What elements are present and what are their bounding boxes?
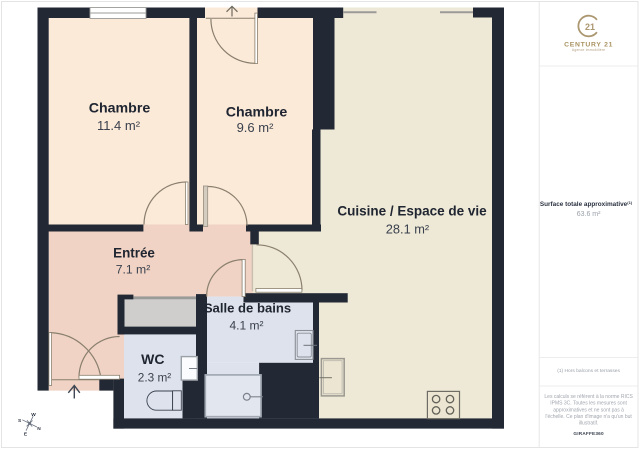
svg-text:approximatives et ne sont pas: approximatives et ne sont pas à [553, 407, 624, 413]
svg-text:63.6 m²: 63.6 m² [577, 211, 601, 218]
svg-text:Entrée: Entrée [113, 246, 155, 261]
svg-text:(1) Hors balcons et terrasses: (1) Hors balcons et terrasses [557, 368, 620, 374]
svg-text:Chambre: Chambre [226, 105, 288, 121]
svg-text:9.6 m²: 9.6 m² [237, 120, 275, 135]
svg-text:Chambre: Chambre [89, 101, 151, 117]
svg-text:7.1 m²: 7.1 m² [116, 263, 151, 277]
svg-text:l'échelle. Ce plan d'image n'a: l'échelle. Ce plan d'image n'a qu'un but [545, 414, 632, 420]
svg-text:21: 21 [585, 22, 595, 32]
svg-text:Salle de bains: Salle de bains [204, 301, 291, 316]
svg-text:28.1 m²: 28.1 m² [386, 222, 430, 237]
svg-text:N: N [37, 426, 41, 432]
svg-text:Les calculs se réfèrent à la n: Les calculs se réfèrent à la norme RICS [544, 394, 633, 400]
svg-text:W: W [31, 412, 36, 418]
svg-text:Cuisine / Espace de vie: Cuisine / Espace de vie [337, 204, 487, 219]
svg-text:Surface totale approximative(1: Surface totale approximative(1) [540, 200, 633, 208]
svg-text:2.3 m²: 2.3 m² [138, 371, 172, 385]
svg-text:11.4 m²: 11.4 m² [97, 118, 141, 133]
svg-text:Agence immobilière: Agence immobilière [572, 48, 605, 52]
svg-text:WC: WC [141, 351, 164, 367]
svg-text:GIRAFFE360: GIRAFFE360 [573, 431, 604, 436]
svg-text:4.1 m²: 4.1 m² [229, 319, 263, 333]
svg-text:illustratif.: illustratif. [579, 421, 599, 427]
svg-text:IPMS 3C. Toutes les mesures so: IPMS 3C. Toutes les mesures sont [550, 401, 627, 407]
